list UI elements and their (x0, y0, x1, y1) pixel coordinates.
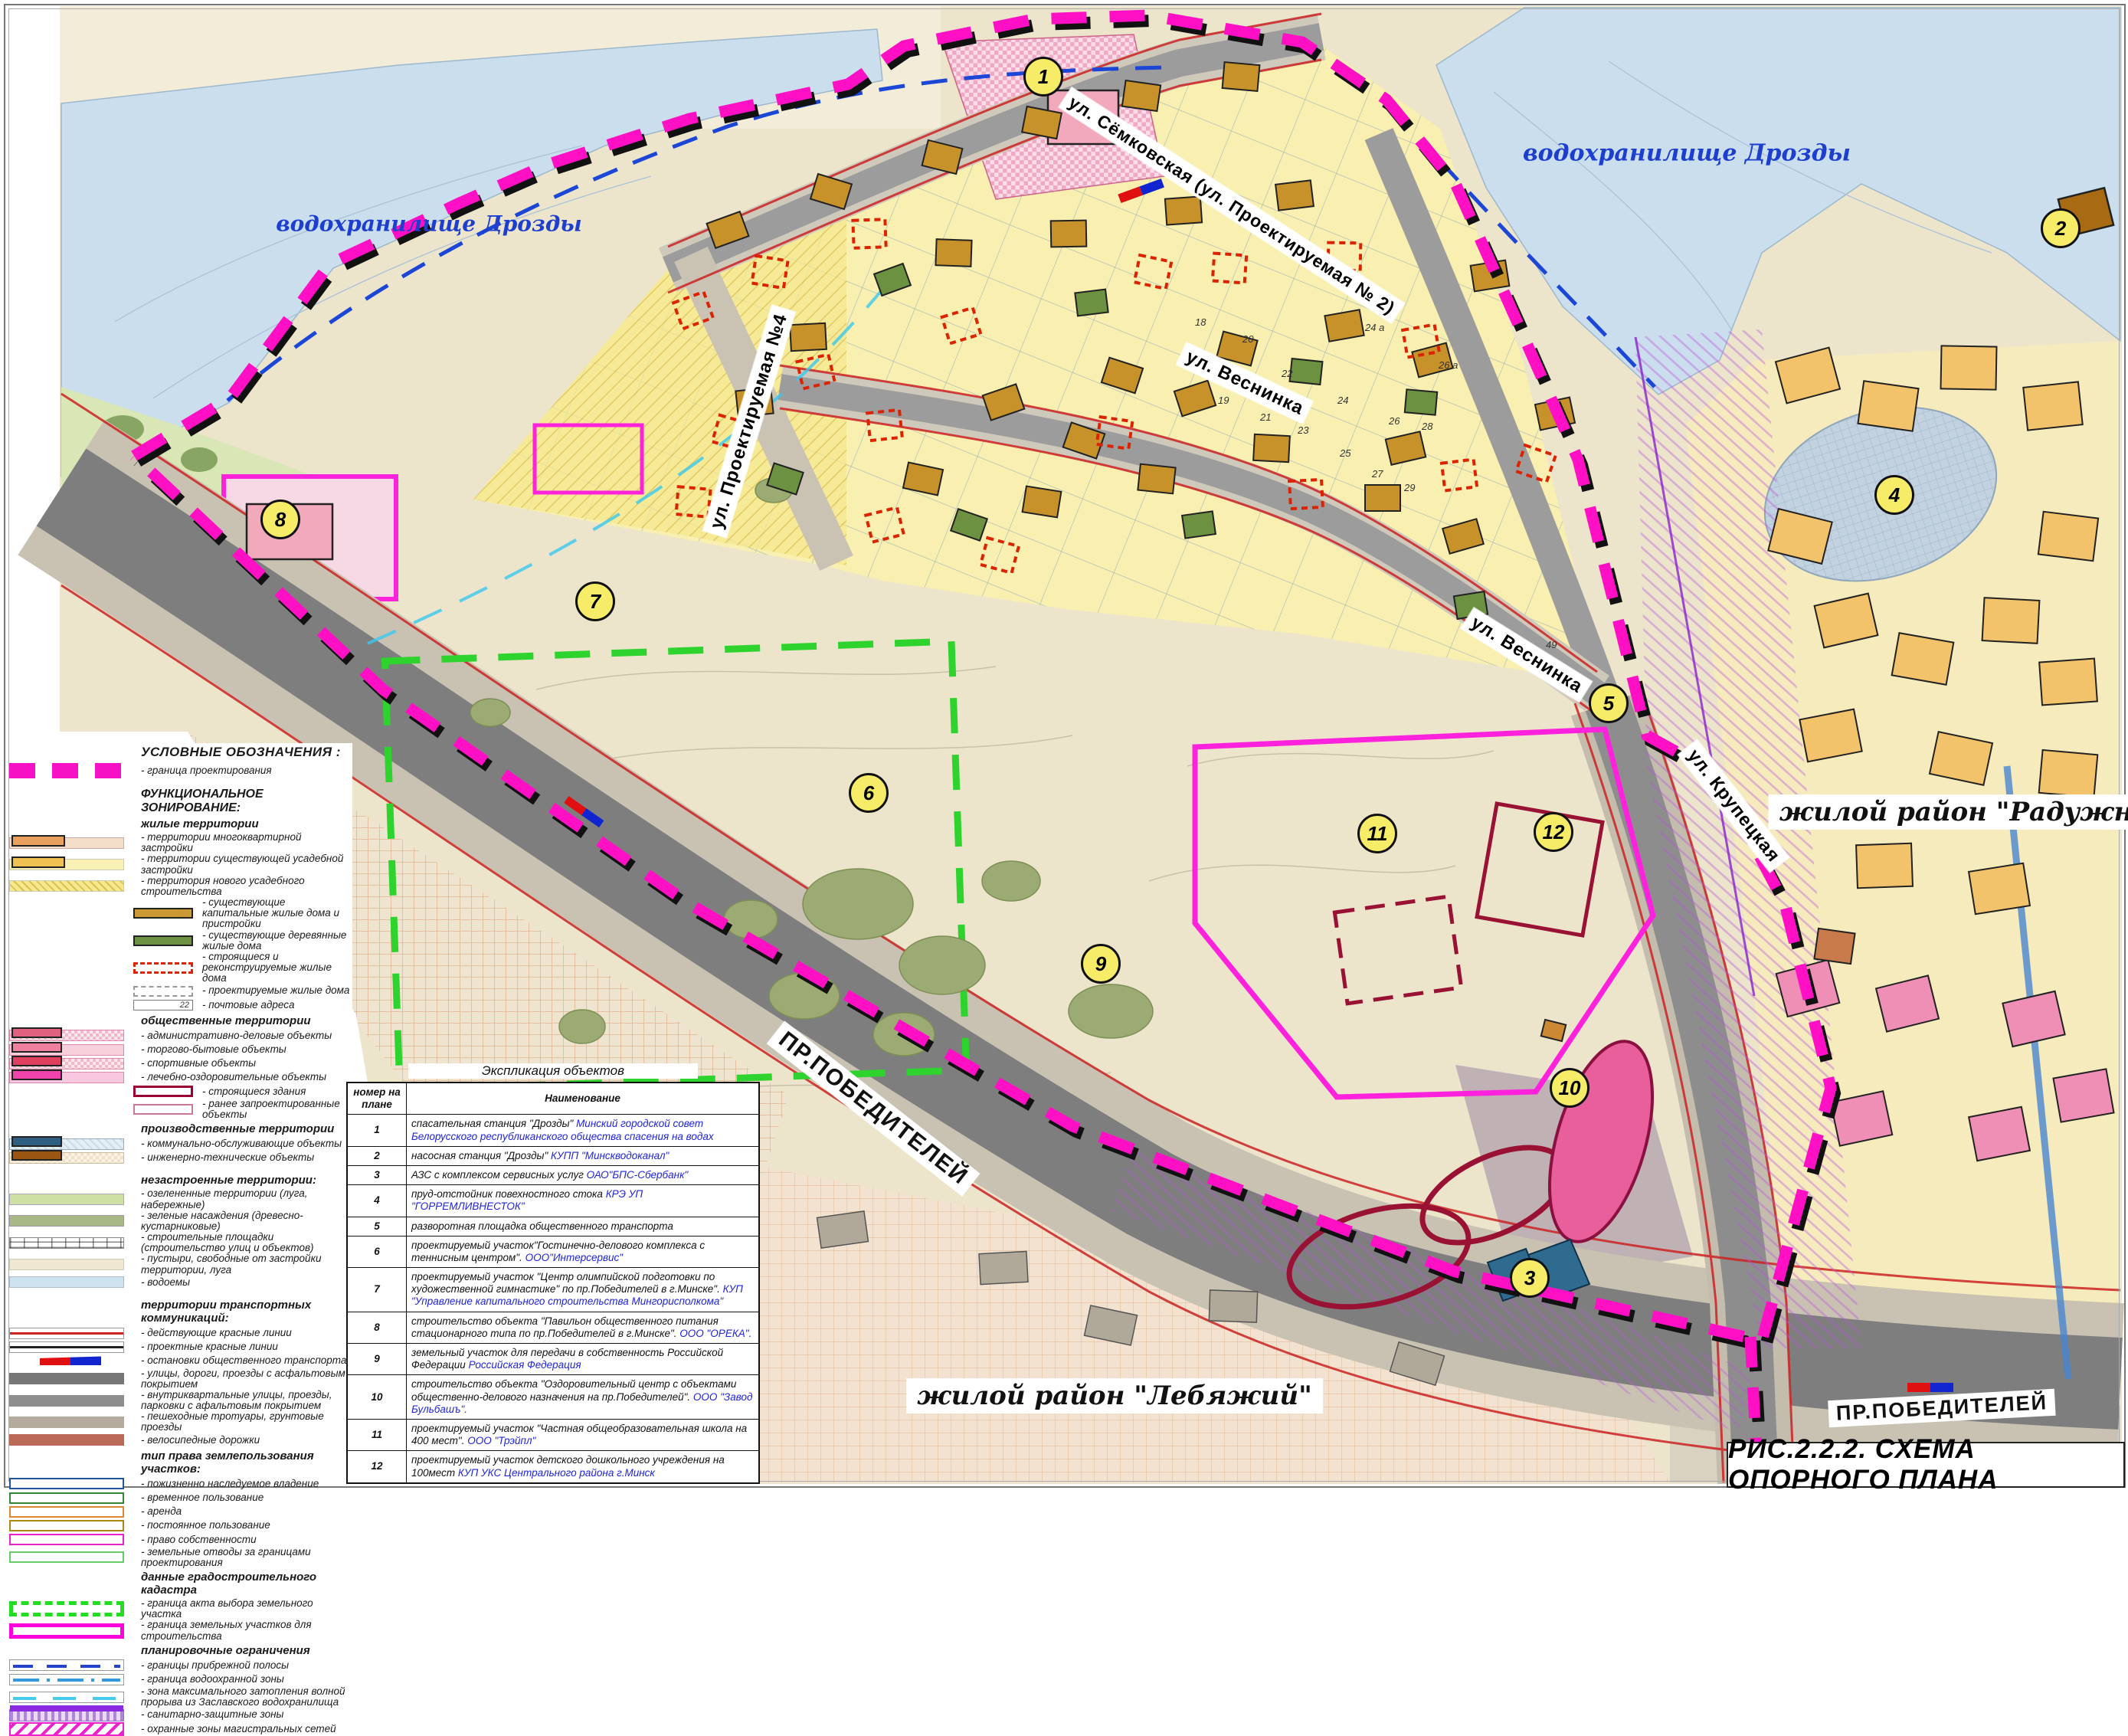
legend-item: - право собственности (9, 1533, 352, 1547)
legend-item: - действующие красные линии (9, 1326, 352, 1340)
legend-item-label: - ранее запроектированные объекты (199, 1099, 352, 1120)
legend-item-label: - пожизненно наследуемое владение (138, 1479, 319, 1489)
title-block: РИС.2.2.2. СХЕМА ОПОРНОГО ПЛАНА (1727, 1442, 2125, 1488)
plan-marker-10: 10 (1550, 1068, 1589, 1108)
legend-item-label: - граница земельных участков для строите… (138, 1620, 352, 1641)
object-name: спасательная станция "Дрозды" Минский го… (407, 1115, 760, 1146)
legend-section-header: общественные территории (141, 1014, 352, 1027)
legend-item-label: - проектные красные линии (138, 1341, 278, 1352)
legend-item: - пешеходные тротуары, грунтовые проезды (9, 1411, 352, 1433)
zone-newusad-swatch (9, 880, 124, 892)
explication-table: номер на плане Наименование 1спасательна… (346, 1082, 760, 1484)
object-name: АЗС с комплексом сервисных услуг ОАО"БПС… (407, 1165, 760, 1184)
legend-item: - граница акта выбора земельного участка (9, 1598, 352, 1620)
object-number: 8 (347, 1312, 407, 1343)
object-number: 3 (347, 1165, 407, 1184)
pub-trade-swatch (9, 1044, 124, 1056)
legend-item: - пустыри, свободные от застройки террит… (9, 1253, 352, 1275)
cad-constr-swatch (9, 1623, 124, 1639)
legend-item-label: - водоемы (138, 1277, 190, 1288)
bld-building-swatch (133, 1086, 193, 1097)
right-green-swatch (9, 1492, 124, 1504)
legend: УСЛОВНЫЕ ОБОЗНАЧЕНИЯ : - граница проекти… (9, 743, 352, 1486)
legend-section-header: ФУНКЦИОНАЛЬНОЕ ЗОНИРОВАНИЕ: (141, 788, 352, 815)
legend-item: 22- почтовые адреса (9, 998, 352, 1012)
object-number: 11 (347, 1419, 407, 1450)
legend-item: - внутриквартальные улицы, проезды, парк… (9, 1390, 352, 1411)
right-ltgreen-swatch (9, 1551, 124, 1563)
line-red-swatch (9, 1328, 124, 1339)
legend-item: - аренда (9, 1505, 352, 1518)
legend-section-header: территории транспортных коммуникаций: (141, 1299, 352, 1325)
legend-item-label: - территория нового усадебного строитель… (138, 876, 352, 897)
legend-item: - территории существующей усадебной заст… (9, 853, 352, 875)
legend-item: - административно-деловые объекты (9, 1029, 352, 1043)
plan-marker-3: 3 (1510, 1258, 1550, 1298)
legend-item-label: - велосипедные дорожки (138, 1435, 260, 1446)
legend-item: - спортивные объекты (9, 1056, 352, 1070)
stop-swatch (40, 1356, 101, 1365)
cad-act-swatch (9, 1601, 124, 1616)
col-header-name: Наименование (407, 1083, 760, 1115)
legend-item: - граница земельных участков для строите… (9, 1620, 352, 1641)
legend-item-label: - озелененные территории (луга, набережн… (138, 1188, 352, 1210)
lim-coast-swatch (9, 1659, 124, 1671)
vacant-swatch (9, 1259, 124, 1270)
legend-item: - территория нового усадебного строитель… (9, 876, 352, 897)
prod-comm-swatch (9, 1138, 124, 1150)
pub-admin-swatch (9, 1030, 124, 1041)
legend-item-label: - санитарно-защитные зоны (138, 1709, 283, 1720)
bld-proj-swatch (133, 986, 193, 997)
legend-item: - озелененные территории (луга, набережн… (9, 1188, 352, 1210)
legend-item: - проектируемые жилые дома (9, 984, 352, 997)
road-inner-swatch (9, 1395, 124, 1407)
plan-marker-1: 1 (1023, 57, 1063, 97)
legend-item-label: - действующие красные линии (138, 1328, 292, 1338)
legend-item: - существующие капитальные жилые дома и … (9, 897, 352, 930)
guard-swatch (9, 1722, 124, 1736)
plan-marker-8: 8 (260, 500, 300, 539)
object-number: 9 (347, 1344, 407, 1375)
right-orange-swatch (9, 1506, 124, 1518)
legend-item: - ранее запроектированные объекты (9, 1099, 352, 1120)
legend-item-label: - земельные отводы за границами проектир… (138, 1547, 352, 1568)
legend-item: - улицы, дороги, проезды с асфальтовым п… (9, 1368, 352, 1390)
legend-item-label: - инженерно-технические объекты (138, 1152, 314, 1163)
explication-row: 11проектируемый участок "Частная общеобр… (347, 1419, 759, 1450)
bld-wood-swatch (133, 935, 193, 946)
legend-item: - проектные красные линии (9, 1340, 352, 1354)
legend-item: - пожизненно наследуемое владение (9, 1477, 352, 1491)
legend-item-label: - зеленые насаждения (древесно-кустарник… (138, 1210, 352, 1232)
green-lug-swatch (9, 1194, 124, 1205)
explication-row: 10строительство объекта "Оздоровительный… (347, 1375, 759, 1420)
legend-item: - постоянное пользование (9, 1518, 352, 1532)
object-number: 5 (347, 1217, 407, 1236)
explication: Экспликация объектов номер на плане Наим… (346, 1063, 760, 1484)
road-ped-swatch (9, 1417, 124, 1428)
legend-section-header: незастроенные территории: (141, 1174, 352, 1187)
object-name: пруд-отстойник повехностного стока КРЭ У… (407, 1185, 760, 1217)
district-label-raduzhny: жилой район "Радужный" (1769, 794, 2128, 830)
right-magenta-swatch (9, 1534, 124, 1545)
legend-item: - временное пользование (9, 1491, 352, 1505)
object-name: разворотная площадка общественного транс… (407, 1217, 760, 1236)
legend-item-label: - аренда (138, 1506, 182, 1517)
sheet-title: РИС.2.2.2. СХЕМА ОПОРНОГО ПЛАНА (1728, 1434, 2123, 1495)
road-main-swatch (9, 1373, 124, 1384)
object-name: земельный участок для передачи в собстве… (407, 1344, 760, 1375)
plan-marker-6: 6 (849, 773, 889, 813)
legend-item-label: - граница водоохранной зоны (138, 1674, 284, 1685)
object-name: проектируемый участок"Гостинечно-деловог… (407, 1236, 760, 1267)
object-name: насосная станция "Дрозды" КУПП "Минсквод… (407, 1146, 760, 1165)
legend-item-label: - постоянное пользование (138, 1520, 270, 1531)
plan-marker-9: 9 (1081, 944, 1121, 984)
legend-item-label: - охранные зоны магистральных сетей (138, 1724, 336, 1734)
legend-item: - территории многоквартирной застройки (9, 832, 352, 853)
constr-site-swatch (9, 1237, 124, 1249)
district-label-lebyazhy: жилой район "Лебяжий" (906, 1378, 1323, 1413)
legend-section-header: планировочные ограничения (141, 1644, 352, 1657)
bld-capital-swatch (133, 908, 193, 919)
object-number: 1 (347, 1115, 407, 1146)
legend-item-label: - пустыри, свободные от застройки террит… (138, 1253, 352, 1275)
legend-item: - существующие деревянные жилые дома (9, 930, 352, 952)
pub-health-swatch (9, 1072, 124, 1083)
pub-sport-swatch (9, 1058, 124, 1069)
legend-item-label: - граница проектирования (138, 765, 272, 776)
legend-item: - коммунально-обслуживающие объекты (9, 1137, 352, 1151)
addr-swatch: 22 (133, 1000, 193, 1010)
legend-item-label: - коммунально-обслуживающие объекты (138, 1138, 342, 1149)
explication-row: 4пруд-отстойник повехностного стока КРЭ … (347, 1185, 759, 1217)
legend-item-label: - почтовые адреса (199, 1000, 295, 1010)
legend-item: - строящиеся здания (9, 1085, 352, 1099)
water-swatch (9, 1276, 124, 1288)
object-name: проектируемый участок "Частная общеобраз… (407, 1419, 760, 1450)
zone-usad-swatch (9, 859, 124, 870)
object-name: строительство объекта "Оздоровительный ц… (407, 1375, 760, 1420)
legend-item-label: - территории существующей усадебной заст… (138, 853, 352, 875)
legend-item-label: - строящиеся здания (199, 1086, 306, 1097)
object-number: 10 (347, 1375, 407, 1420)
water-label-east: водохранилище Дрозды (1523, 140, 1851, 167)
legend-item-label: - граница акта выбора земельного участка (138, 1598, 352, 1620)
object-name: проектируемый участок детского дошкольно… (407, 1451, 760, 1483)
road-bike-swatch (9, 1434, 124, 1446)
zone-multi-swatch (9, 837, 124, 849)
object-number: 7 (347, 1268, 407, 1312)
legend-title: УСЛОВНЫЕ ОБОЗНАЧЕНИЯ : (141, 745, 352, 760)
legend-item: - лечебно-оздоровительные объекты (9, 1070, 352, 1084)
plan-marker-12: 12 (1534, 812, 1573, 852)
legend-item: - границы прибрежной полосы (9, 1659, 352, 1672)
plan-marker-11: 11 (1357, 814, 1397, 853)
legend-item: - строящиеся и реконструируемые жилые до… (9, 952, 352, 984)
explication-row: 9земельный участок для передачи в собств… (347, 1344, 759, 1375)
legend-item-label: - торгово-бытовые объекты (138, 1044, 286, 1055)
legend-item: - строительные площадки (строительство у… (9, 1232, 352, 1253)
legend-item-label: - административно-деловые объекты (138, 1030, 332, 1041)
explication-row: 1спасательная станция "Дрозды" Минский г… (347, 1115, 759, 1146)
line-black-swatch (9, 1341, 124, 1353)
plan-marker-7: 7 (575, 581, 615, 621)
legend-item-label: - внутриквартальные улицы, проезды, парк… (138, 1390, 352, 1411)
explication-row: 12проектируемый участок детского дошколь… (347, 1451, 759, 1483)
explication-row: 7проектируемый участок "Центр олимпийско… (347, 1268, 759, 1312)
bld-constr-swatch (133, 962, 193, 974)
legend-item-label: - лечебно-оздоровительные объекты (138, 1072, 326, 1083)
map-sheet: 18202224 а26 а19212324252627282949 водох… (0, 0, 2128, 1490)
object-name: проектируемый участок "Центр олимпийской… (407, 1268, 760, 1312)
object-number: 4 (347, 1185, 407, 1217)
legend-section-header: жилые территории (141, 817, 352, 830)
legend-item-label: - существующие деревянные жилые дома (199, 930, 352, 952)
legend-item-label: - временное пользование (138, 1492, 264, 1503)
legend-item-label: - существующие капитальные жилые дома и … (199, 897, 352, 930)
col-header-number: номер на плане (347, 1083, 407, 1115)
legend-item-label: - строительные площадки (строительство у… (138, 1232, 352, 1253)
legend-item-label: - территории многоквартирной застройки (138, 832, 352, 853)
object-name: строительство объекта "Павильон обществе… (407, 1312, 760, 1343)
explication-row: 6проектируемый участок"Гостинечно-делово… (347, 1236, 759, 1267)
right-blue-swatch (9, 1478, 124, 1489)
legend-item-label: - улицы, дороги, проезды с асфальтовым п… (138, 1368, 352, 1390)
plan-marker-4: 4 (1874, 475, 1914, 515)
object-number: 12 (347, 1451, 407, 1483)
lim-flood-swatch (9, 1692, 124, 1703)
legend-item-label: - границы прибрежной полосы (138, 1660, 289, 1671)
legend-item: - охранные зоны магистральных сетей (9, 1722, 352, 1736)
legend-item: - земельные отводы за границами проектир… (9, 1547, 352, 1568)
explication-row: 2насосная станция "Дрозды" КУПП "Минскво… (347, 1146, 759, 1165)
legend-item-label: - остановки общественного транспорта (138, 1355, 346, 1366)
bld-earlier-swatch (133, 1104, 193, 1115)
legend-item-label: - проектируемые жилые дома (199, 985, 349, 996)
lim-watch-swatch (9, 1674, 124, 1685)
legend-item: - водоемы (9, 1276, 352, 1289)
boundary-swatch (9, 763, 124, 778)
legend-section-header: данные градостроительного кадастра (141, 1571, 352, 1597)
legend-item: - остановки общественного транспорта (9, 1354, 352, 1368)
legend-item: - торгово-бытовые объекты (9, 1043, 352, 1056)
right-mustard-swatch (9, 1520, 124, 1531)
explication-row: 5разворотная площадка общественного тран… (347, 1217, 759, 1236)
legend-item: - инженерно-технические объекты (9, 1151, 352, 1164)
water-label-west: водохранилище Дрозды (276, 211, 582, 237)
legend-item: - велосипедные дорожки (9, 1433, 352, 1447)
object-number: 6 (347, 1236, 407, 1267)
green-trees-swatch (9, 1215, 124, 1227)
plan-marker-2: 2 (2041, 208, 2081, 248)
legend-item: - санитарно-защитные зоны (9, 1708, 352, 1721)
legend-section-header: тип права землепользования участков: (141, 1449, 352, 1476)
explication-row: 3АЗС с комплексом сервисных услуг ОАО"БП… (347, 1165, 759, 1184)
object-number: 2 (347, 1146, 407, 1165)
legend-item-label: - строящиеся и реконструируемые жилые до… (199, 952, 352, 984)
legend-item-label: - право собственности (138, 1535, 257, 1545)
legend-item-label: - пешеходные тротуары, грунтовые проезды (138, 1411, 352, 1433)
legend-item-label: - зона максимального затопления волной п… (138, 1686, 352, 1708)
explication-row: 8строительство объекта "Павильон обществ… (347, 1312, 759, 1343)
explication-title: Экспликация объектов (408, 1063, 698, 1079)
legend-item: - зеленые насаждения (древесно-кустарник… (9, 1210, 352, 1232)
sanitary-swatch (9, 1709, 124, 1721)
legend-item-label: - спортивные объекты (138, 1058, 256, 1069)
legend-item: - граница водоохранной зоны (9, 1672, 352, 1686)
plan-marker-5: 5 (1589, 683, 1629, 723)
prod-eng-swatch (9, 1152, 124, 1164)
legend-section-header: производственные территории (141, 1122, 352, 1135)
legend-item: - граница проектирования (9, 763, 352, 778)
